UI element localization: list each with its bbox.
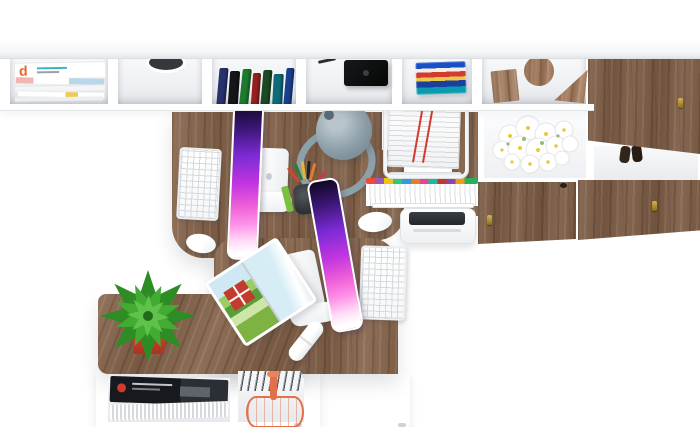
magazine-stack: d <box>14 62 104 102</box>
wooden-disc-bookend <box>524 56 554 86</box>
red-farmhouse <box>223 280 255 312</box>
printer <box>400 208 476 244</box>
book-spine <box>251 73 261 104</box>
printer-top-panel <box>409 212 465 225</box>
pedestal-foot <box>398 423 406 427</box>
book-spine <box>216 68 228 104</box>
daisy-bouquet <box>480 106 594 176</box>
book-row <box>216 58 294 104</box>
slippers-decor <box>631 144 643 162</box>
book-spine <box>261 70 273 104</box>
magazine-red-logo <box>117 383 126 392</box>
door-gap-dot <box>560 183 567 188</box>
copper-basket-handle-knob <box>267 371 280 377</box>
keyhole-handle <box>652 201 657 211</box>
succulent-core <box>143 311 153 321</box>
speaker-grille-dot <box>363 70 369 76</box>
shelf-front-edge <box>0 104 594 111</box>
speaker-box <box>344 60 388 86</box>
wall-shelf-top-face <box>0 0 700 59</box>
keyhole-handle <box>678 98 683 108</box>
cabinet-door-left <box>478 182 576 244</box>
keyhole-handle <box>487 215 492 225</box>
file-color-tabs <box>366 178 478 184</box>
copper-basket-handle <box>270 374 277 400</box>
magazine-logo: d <box>19 63 28 79</box>
stand-logo-dot <box>266 173 272 180</box>
office-topdown-render: d <box>0 0 700 427</box>
keyboard-2 <box>359 245 408 321</box>
book-spine <box>283 68 294 104</box>
wooden-cube-bookend <box>490 69 519 104</box>
upper-cabinet-door <box>588 58 700 154</box>
keyboard-1 <box>176 147 222 221</box>
lamp-shade-apex <box>324 110 334 120</box>
copper-basket <box>246 396 304 427</box>
cabinet-door-right <box>578 180 700 240</box>
file-rail <box>372 203 474 208</box>
book-spine <box>239 69 252 104</box>
book-spine <box>228 71 240 104</box>
stacked-books <box>415 61 466 95</box>
book-spine <box>272 74 284 104</box>
printer-paper-slot <box>413 229 461 232</box>
